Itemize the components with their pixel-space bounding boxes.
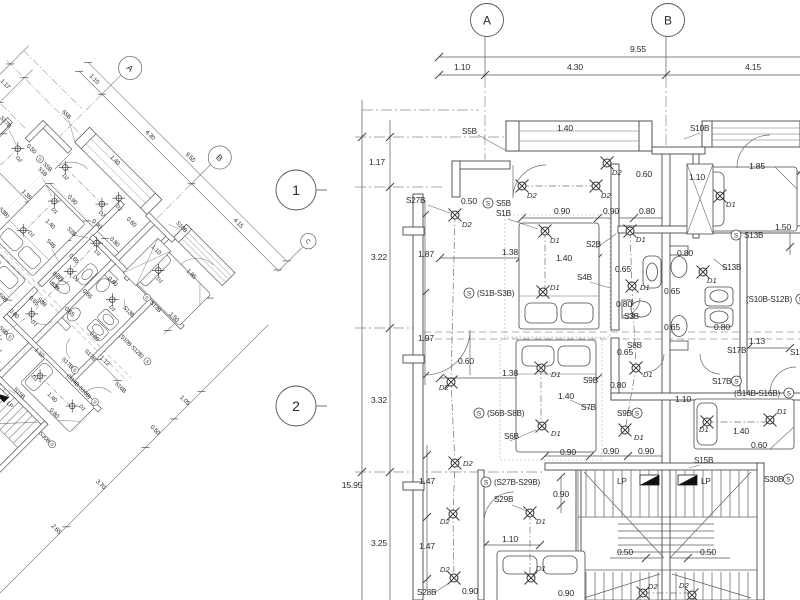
- overview-row-bubbles: 12: [276, 170, 327, 426]
- cad-canvas: ABC9.551.104.304.1515.951.173.223.323.25…: [0, 0, 800, 600]
- row-bubble-label: 2: [292, 398, 300, 414]
- row-bubble: 1: [276, 170, 327, 210]
- overview-plan-rotated: [0, 0, 338, 600]
- row-bubble-label: 1: [292, 182, 300, 198]
- detail-plan: [342, 4, 800, 600]
- row-bubble: 2: [276, 386, 327, 426]
